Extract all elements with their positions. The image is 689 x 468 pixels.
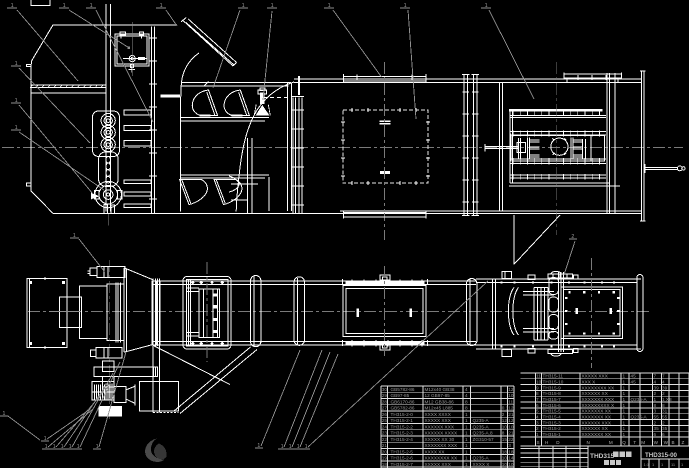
svg-text:XXXX X: XXXX X [473, 462, 491, 467]
svg-text:1: 1 [63, 3, 66, 9]
svg-text:14: 14 [508, 456, 514, 461]
svg-text:7: 7 [662, 374, 665, 379]
svg-text:1: 1 [465, 412, 468, 417]
svg-text:TH315-4: TH315-4 [543, 414, 562, 419]
svg-text:35: 35 [654, 426, 660, 431]
svg-text:24: 24 [382, 424, 388, 429]
svg-text:1: 1 [465, 418, 468, 423]
svg-text:XXXXXX XXX: XXXXXX XXX [582, 420, 612, 425]
svg-text:TH315-11: TH315-11 [543, 374, 564, 379]
svg-text:XXXXXXXX XX: XXXXXXXX XX [582, 385, 615, 390]
svg-text:4: 4 [654, 380, 657, 385]
svg-text:1: 1 [623, 391, 626, 396]
svg-text:XXXXXX XXXX: XXXXXX XXXX [425, 431, 458, 436]
svg-text:1: 1 [77, 444, 80, 450]
svg-text:10: 10 [508, 393, 514, 398]
svg-text:20: 20 [382, 449, 388, 454]
svg-text:S: S [537, 440, 540, 445]
svg-text:1: 1 [465, 462, 468, 467]
svg-text:1: 1 [15, 125, 18, 131]
svg-text:3: 3 [654, 409, 657, 414]
svg-text:4: 4 [662, 380, 665, 385]
svg-text:1: 1 [465, 456, 468, 461]
svg-text:XXXXX XXX: XXXXX XXX [425, 418, 452, 423]
svg-text:10: 10 [508, 462, 514, 467]
svg-text:45: 45 [631, 380, 637, 385]
svg-text:M12x40 GB38: M12x40 GB38 [425, 387, 455, 392]
svg-text:TH315-10: TH315-10 [543, 380, 564, 385]
svg-text:TH315-2-5: TH315-2-5 [391, 449, 414, 454]
svg-text:1: 1 [623, 414, 626, 419]
svg-text:10: 10 [508, 424, 514, 429]
svg-text:45: 45 [631, 374, 637, 379]
svg-text:M: M [609, 440, 613, 445]
svg-text:XXXXX XX 30: XXXXX XX 30 [425, 437, 455, 442]
svg-text:12: 12 [508, 387, 514, 392]
svg-text:Q235-A: Q235-A [631, 414, 648, 419]
svg-text:18: 18 [382, 462, 388, 467]
svg-text:1: 1 [15, 98, 18, 104]
svg-text:9: 9 [536, 385, 539, 390]
svg-text:1: 1 [536, 432, 539, 437]
svg-text:TH315-1: TH315-1 [543, 432, 562, 437]
svg-text:XXXXX XXX: XXXXX XXX [425, 462, 452, 467]
svg-text:27: 27 [382, 406, 388, 411]
svg-text:7: 7 [654, 374, 657, 379]
svg-text:1: 1 [328, 3, 331, 9]
svg-text:Q235-A: Q235-A [473, 418, 490, 423]
svg-text:XXXXXXXX XX: XXXXXXXX XX [425, 456, 458, 461]
svg-text:21: 21 [508, 431, 514, 436]
svg-text:8: 8 [502, 431, 505, 436]
svg-text:39: 39 [654, 385, 660, 390]
svg-text:1: 1 [160, 3, 163, 9]
svg-text:1: 1 [289, 444, 292, 450]
svg-text:10: 10 [502, 456, 508, 461]
svg-text:3: 3 [508, 443, 511, 448]
svg-text:12: 12 [508, 406, 514, 411]
svg-text:TH315-2-1: TH315-2-1 [391, 418, 414, 423]
svg-text:1: 1 [465, 443, 468, 448]
svg-text:2: 2 [502, 412, 505, 417]
svg-text:Q235-A.8: Q235-A.8 [473, 431, 493, 436]
svg-text:1: 1 [297, 444, 300, 450]
svg-text:25: 25 [382, 418, 388, 423]
svg-text:55: 55 [662, 414, 668, 419]
svg-text:31: 31 [662, 409, 668, 414]
svg-text:XXXXXXX XX: XXXXXXX XX [582, 432, 612, 437]
svg-text:TH315-7: TH315-7 [543, 397, 562, 402]
svg-text:1: 1 [623, 374, 626, 379]
svg-text:TH315-5: TH315-5 [543, 409, 562, 414]
svg-text:1: 1 [623, 420, 626, 425]
svg-text:TH315-2-6: TH315-2-6 [391, 456, 414, 461]
svg-text:8: 8 [465, 399, 468, 404]
svg-text:1: 1 [623, 380, 626, 385]
svg-text:4: 4 [465, 387, 468, 392]
svg-text:GB6170-86: GB6170-86 [391, 399, 415, 404]
svg-text:TH315-3: TH315-3 [543, 420, 562, 425]
svg-text:8: 8 [536, 391, 539, 396]
svg-text:XXXXXX XX: XXXXXX XX [582, 391, 609, 396]
svg-text:4: 4 [536, 414, 539, 419]
svg-text:1: 1 [257, 443, 260, 449]
svg-text:1: 1 [45, 444, 48, 450]
svg-text:4: 4 [465, 393, 468, 398]
svg-text:1: 1 [3, 411, 6, 417]
svg-text:1: 1 [242, 3, 245, 9]
svg-text:1: 1 [11, 3, 14, 9]
svg-text:TH315-8: TH315-8 [543, 391, 562, 396]
svg-text:1: 1 [465, 437, 468, 442]
svg-text:TH315-6: TH315-6 [543, 403, 562, 408]
svg-text:XXXXXXX XX: XXXXXXX XX [582, 414, 612, 419]
svg-text:12 GB97-85: 12 GB97-85 [425, 393, 451, 398]
svg-text:10: 10 [502, 424, 508, 429]
svg-text:B: B [672, 440, 675, 445]
svg-text:2: 2 [536, 426, 539, 431]
svg-text:6: 6 [536, 403, 539, 408]
svg-text:TH315-2-7: TH315-2-7 [391, 462, 414, 467]
svg-text:TH315-2-4: TH315-2-4 [391, 437, 414, 442]
svg-text:21: 21 [382, 443, 388, 448]
svg-text:2: 2 [662, 391, 665, 396]
svg-text:2: 2 [654, 420, 657, 425]
svg-text:1: 1 [15, 61, 18, 67]
svg-text:1: 1 [623, 403, 626, 408]
svg-text:XXXXXX XX: XXXXXX XX [582, 426, 609, 431]
svg-text:28: 28 [382, 399, 388, 404]
svg-text:12: 12 [502, 418, 508, 423]
svg-text:THD315-00: THD315-00 [645, 452, 678, 459]
svg-text:12: 12 [508, 418, 514, 423]
svg-text:Q235-A: Q235-A [473, 456, 490, 461]
svg-text:ZG310-57: ZG310-57 [473, 437, 494, 442]
svg-text:XXXX XXXX: XXXX XXXX [425, 412, 452, 417]
svg-text:2: 2 [654, 391, 657, 396]
svg-text:1: 1 [61, 444, 64, 450]
svg-text:2: 2 [662, 420, 665, 425]
svg-text:TH315-2-2: TH315-2-2 [391, 424, 414, 429]
svg-text:5: 5 [536, 409, 539, 414]
svg-text:10: 10 [536, 380, 542, 385]
svg-text:11: 11 [536, 374, 541, 379]
svg-text:3: 3 [536, 420, 539, 425]
svg-text:Q235-A: Q235-A [631, 397, 648, 402]
svg-text:GB97-85: GB97-85 [391, 393, 410, 398]
svg-text:8: 8 [654, 403, 657, 408]
svg-text:Q: Q [622, 440, 626, 445]
svg-text:23: 23 [382, 431, 388, 436]
svg-text:1: 1 [44, 436, 47, 442]
svg-text:N: N [587, 440, 590, 445]
svg-text:10: 10 [502, 462, 508, 467]
svg-text:55: 55 [654, 414, 660, 419]
svg-text:1: 1 [73, 233, 76, 239]
svg-text:1: 1 [281, 444, 284, 450]
svg-text:XXX X: XXX X [582, 380, 597, 385]
svg-text:TH315-2-0: TH315-2-0 [391, 412, 414, 417]
svg-text:1: 1 [465, 449, 468, 454]
svg-text:M: M [641, 440, 645, 445]
svg-text:1: 1 [404, 3, 407, 9]
svg-text:T: T [633, 440, 636, 445]
svg-text:1: 1 [623, 432, 626, 437]
svg-text:1: 1 [96, 444, 99, 450]
svg-text:22: 22 [508, 437, 514, 442]
svg-text:1: 1 [654, 397, 657, 402]
svg-text:1: 1 [623, 409, 626, 414]
svg-text:18: 18 [508, 449, 514, 454]
svg-text:XXXXXXX XXX: XXXXXXX XXX [582, 397, 615, 402]
svg-text:1 X8: 1 X8 [662, 397, 672, 402]
svg-text:6: 6 [662, 432, 665, 437]
svg-text:26: 26 [382, 412, 388, 417]
svg-text:GB5782-86: GB5782-86 [391, 387, 415, 392]
svg-text:1: 1 [465, 431, 468, 436]
svg-text:15: 15 [502, 437, 508, 442]
svg-text:7: 7 [536, 397, 539, 402]
svg-text:GB5782-86: GB5782-86 [391, 406, 415, 411]
svg-text:1: 1 [305, 444, 308, 450]
svg-text:1: 1 [90, 3, 93, 9]
svg-text:TH315-2-3: TH315-2-3 [391, 431, 414, 436]
svg-text:XXXXX XXX: XXXXX XXX [582, 374, 609, 379]
svg-text:XXXXXXX XX: XXXXXXX XX [582, 409, 612, 414]
svg-text:Q235-A: Q235-A [473, 424, 490, 429]
svg-text:8: 8 [465, 406, 468, 411]
svg-text:1: 1 [69, 444, 72, 450]
svg-text:1: 1 [271, 3, 274, 9]
svg-text:TH315-9: TH315-9 [543, 385, 562, 390]
svg-text:35: 35 [662, 426, 668, 431]
svg-text:22: 22 [382, 437, 388, 442]
svg-text:6: 6 [654, 432, 657, 437]
svg-text:1: 1 [623, 426, 626, 431]
svg-text:21: 21 [508, 412, 514, 417]
svg-text:XXXXXXX XXX: XXXXXXX XXX [425, 443, 458, 448]
svg-text:30: 30 [382, 387, 388, 392]
svg-text:Z: Z [682, 440, 685, 445]
svg-text:M12x45 L885: M12x45 L885 [425, 406, 454, 411]
svg-text:THD315: THD315 [590, 453, 615, 460]
svg-text:1: 1 [623, 397, 626, 402]
svg-text:11: 11 [508, 399, 513, 404]
svg-text:29: 29 [382, 393, 388, 398]
svg-text:1: 1 [485, 3, 488, 9]
svg-text:1:1: 1:1 [644, 462, 650, 467]
svg-text:XXXXXX XXX: XXXXXX XXX [425, 424, 455, 429]
svg-text:H: H [545, 440, 548, 445]
svg-text:W: W [664, 440, 669, 445]
svg-text:1: 1 [623, 385, 626, 390]
svg-text:1: 1 [53, 444, 56, 450]
svg-text:18: 18 [502, 449, 508, 454]
svg-text:19: 19 [382, 456, 388, 461]
svg-text:XXXX XX: XXXX XX [425, 449, 446, 454]
svg-text:39: 39 [662, 385, 668, 390]
svg-text:M12 GB38-86: M12 GB38-86 [425, 399, 455, 404]
svg-text:XXXXXXXXX X: XXXXXXXXX X [582, 403, 615, 408]
svg-text:8: 8 [662, 403, 665, 408]
svg-text:TH315-2: TH315-2 [543, 426, 562, 431]
svg-text:1: 1 [465, 424, 468, 429]
svg-text:W: W [654, 440, 659, 445]
svg-text:2: 2 [571, 234, 574, 240]
